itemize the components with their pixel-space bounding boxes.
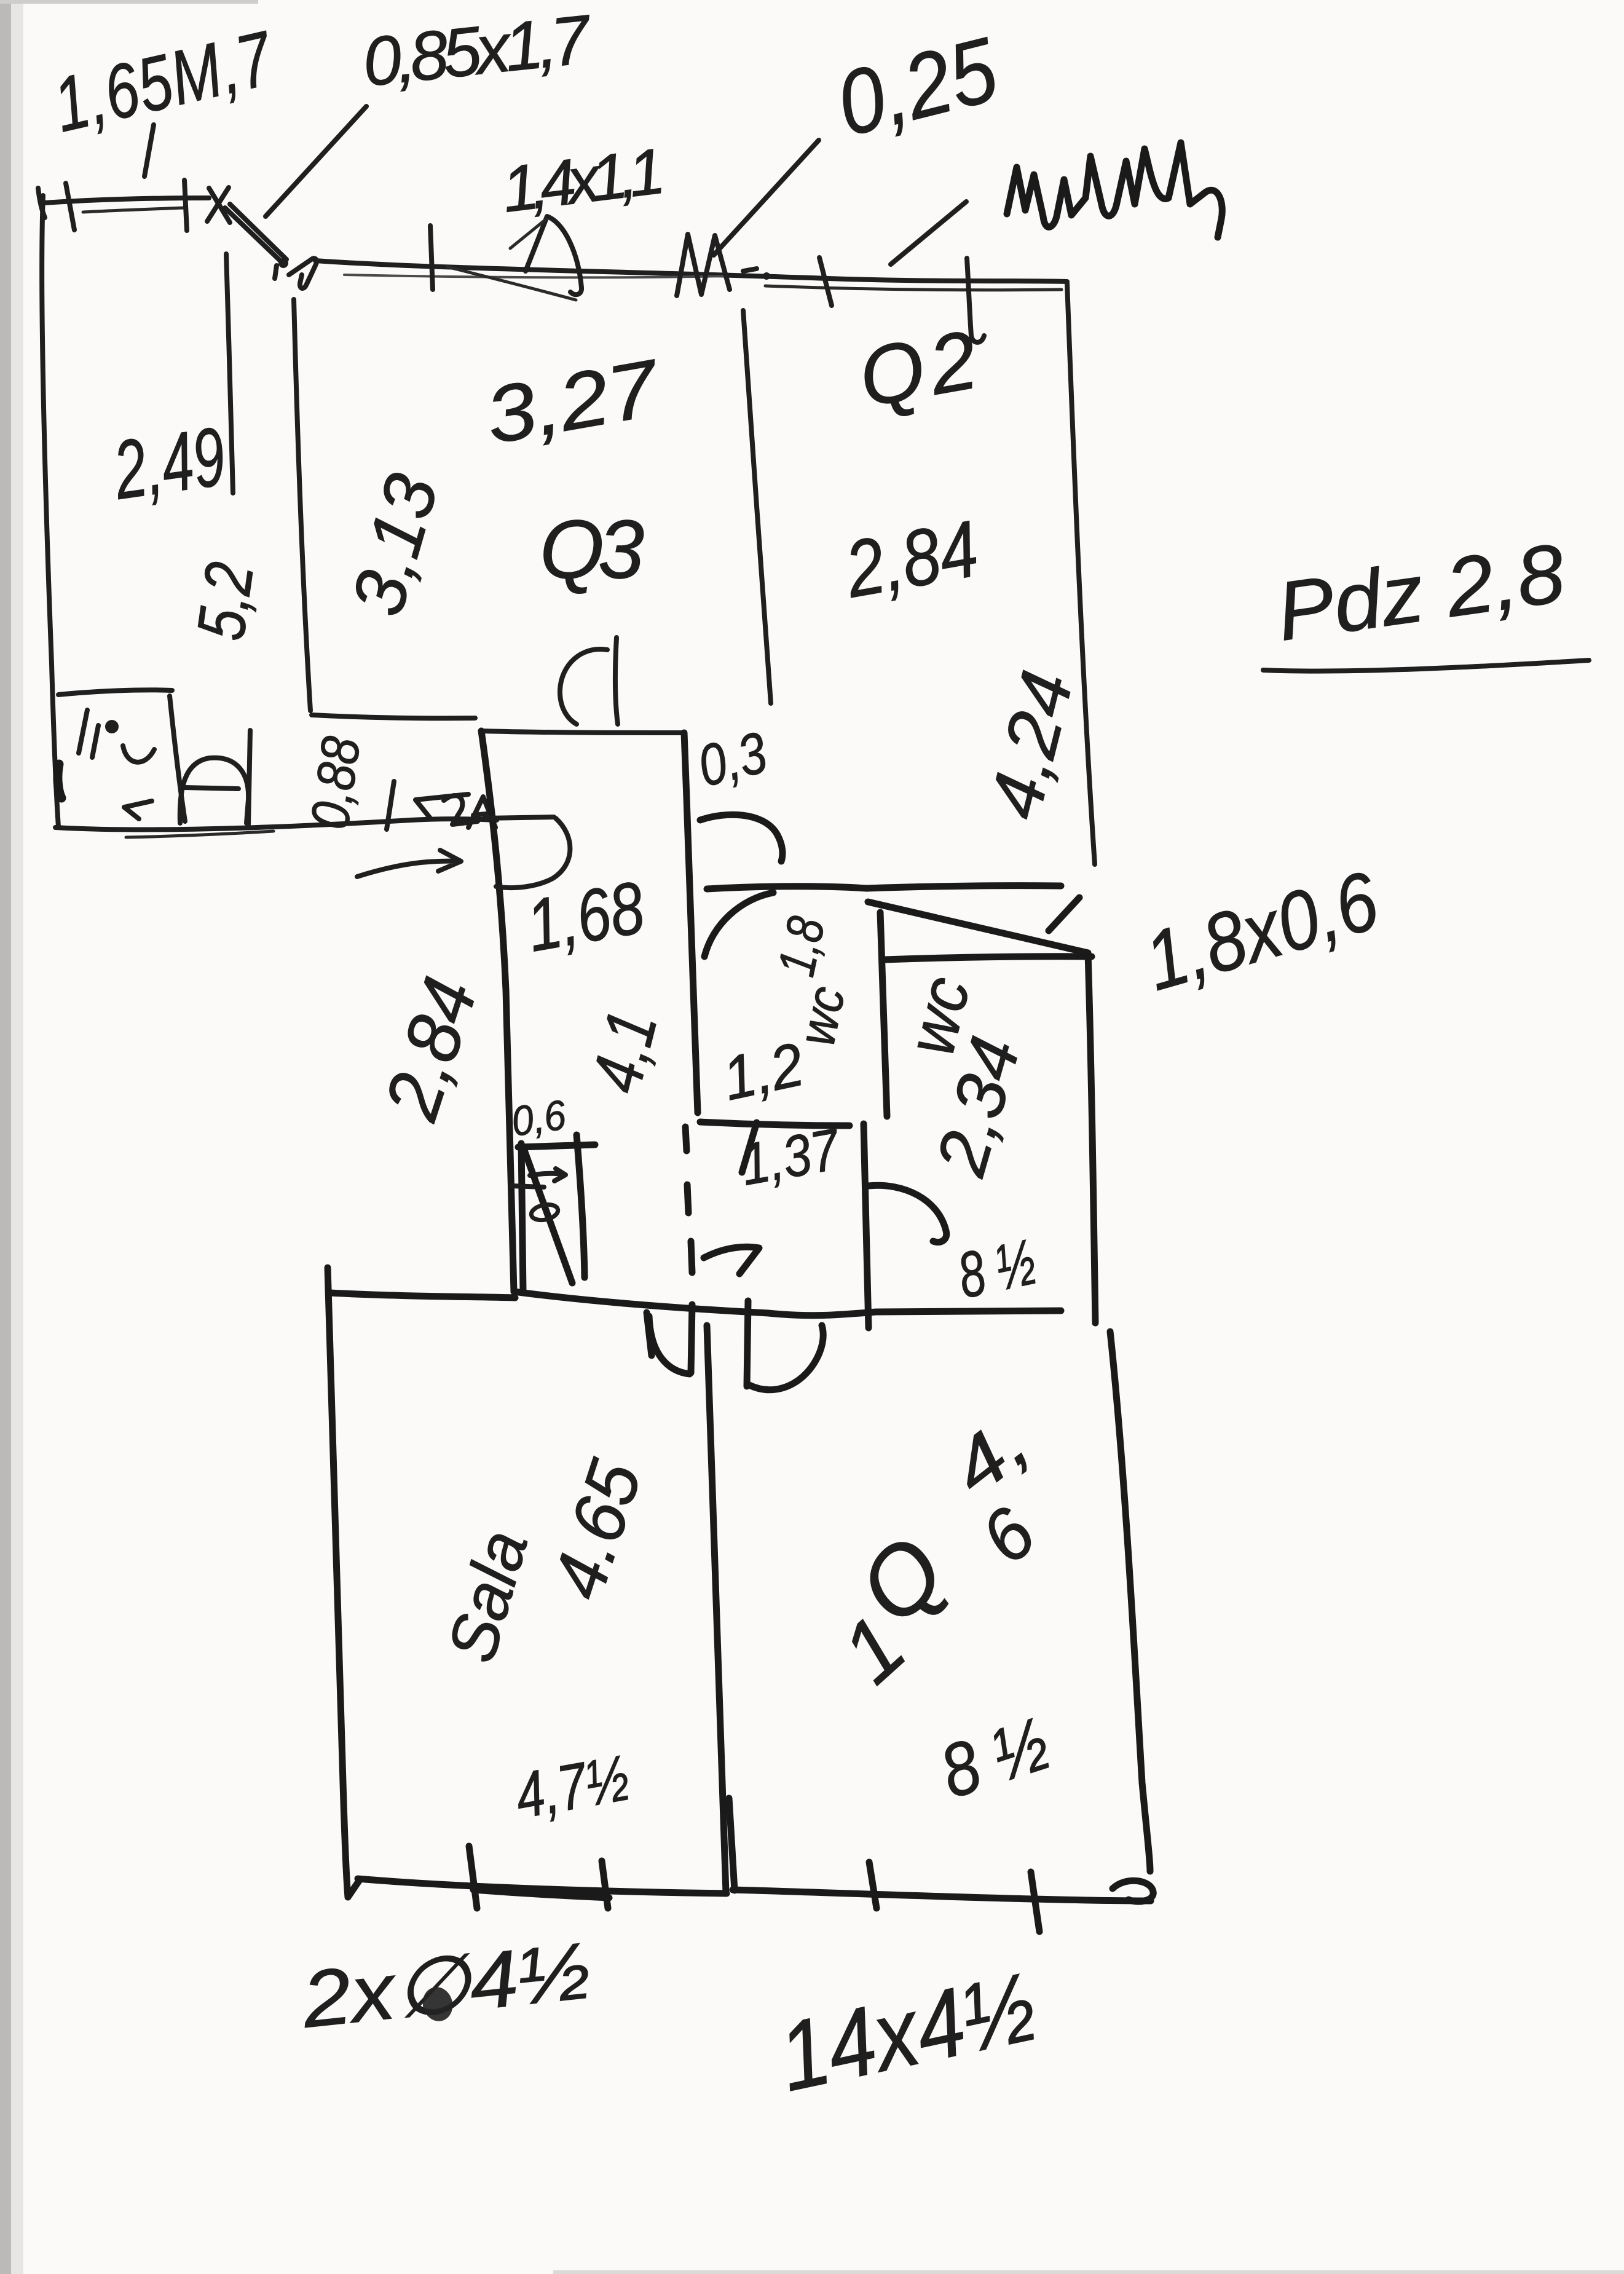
svg-text:wc: wc	[787, 981, 857, 1051]
svg-text:1,8: 1,8	[767, 912, 837, 981]
svg-text:0,6: 0,6	[509, 1091, 569, 1145]
svg-text:2,49: 2,49	[108, 409, 231, 517]
svg-text:0,88: 0,88	[299, 733, 372, 832]
svg-text:Q3: Q3	[540, 503, 644, 596]
svg-text:5,2: 5,2	[183, 558, 268, 644]
